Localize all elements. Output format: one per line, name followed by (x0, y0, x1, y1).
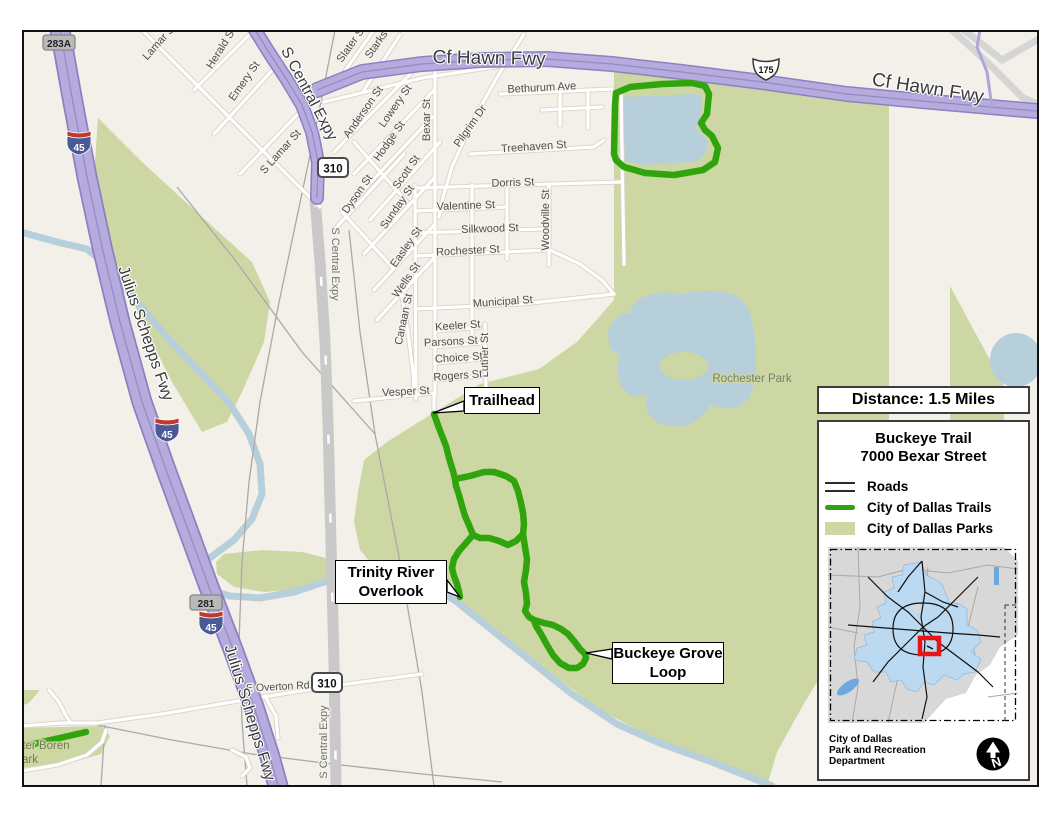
map-label: Emery St (227, 59, 263, 103)
svg-text:45: 45 (205, 623, 217, 634)
legend-item-trails-label: City of Dallas Trails (867, 500, 992, 515)
svg-text:45: 45 (73, 143, 85, 154)
map-label: Parsons St (424, 335, 478, 350)
map-label: S Central Expy (318, 705, 330, 779)
attribution-line3: Department (829, 756, 926, 767)
exit-shield-icon: 281 (190, 595, 222, 610)
map-label: Choice St (435, 350, 483, 365)
svg-text:310: 310 (323, 164, 342, 176)
loop-callout-line2: Loop (613, 663, 723, 682)
legend-items: Roads City of Dallas Trails City of Dall… (825, 476, 1028, 539)
map-label: Vesper St (382, 385, 430, 399)
map-label: ter Boren (24, 740, 70, 752)
map-label: Cf Hawn Fwy (432, 47, 546, 70)
attribution: City of Dallas Park and Recreation Depar… (829, 734, 926, 767)
map-label: ark (24, 754, 38, 766)
inset-locator-map (828, 547, 1018, 723)
map-label: Bexar St (421, 99, 433, 141)
legend-item-roads-label: Roads (867, 479, 908, 494)
distance-panel: Distance: 1.5 Miles (817, 386, 1030, 414)
map-label: Rochester Park (712, 373, 792, 385)
legend-item-parks-label: City of Dallas Parks (867, 521, 993, 536)
map-label: Woodville St (540, 190, 552, 251)
attribution-line2: Park and Recreation (829, 745, 926, 756)
legend-item-trails: City of Dallas Trails (825, 497, 1028, 518)
overlook-callout-line1: Trinity River (336, 563, 446, 582)
interstate-shield-icon: 45 (199, 611, 223, 635)
legend-title-line2: 7000 Bexar Street (819, 448, 1028, 466)
map-label: Rogers St (433, 368, 483, 383)
map-frame: Lamar StHerald StEmery StS Lamar StSlate… (22, 30, 1039, 787)
interstate-shield-icon: 45 (155, 418, 179, 442)
roads-double-line-icon (825, 482, 855, 492)
svg-text:281: 281 (198, 599, 215, 610)
svg-text:283A: 283A (47, 39, 71, 50)
north-arrow-icon: N (975, 736, 1011, 772)
state-shield-icon: 310 (318, 158, 348, 177)
interstate-shield-icon: 45 (67, 131, 91, 155)
map-label: Easley St (388, 225, 424, 270)
overlook-callout-line2: Overlook (336, 582, 446, 601)
loop-callout-line1: Buckeye Grove (613, 644, 723, 663)
distance-value: Distance: 1.5 Miles (852, 391, 995, 409)
map-label: Silkwood St (461, 222, 519, 236)
boren-park-wedge (24, 690, 40, 706)
trinity-river-overlook-callout: Trinity River Overlook (335, 560, 447, 604)
park-swatch-icon (825, 522, 855, 535)
map-label: Pilgrim Dr (452, 103, 490, 150)
attribution-line1: City of Dallas (829, 734, 926, 745)
trailhead-callout-label: Trailhead (465, 391, 539, 410)
map-document-page: Lamar StHerald StEmery StS Lamar StSlate… (0, 0, 1056, 816)
rochester-pond-island (660, 352, 708, 380)
legend-title-line1: Buckeye Trail (819, 430, 1028, 448)
legend-panel: Buckeye Trail 7000 Bexar Street Roads Ci… (817, 420, 1030, 781)
map-label: S Central Expy (329, 227, 341, 301)
trailhead-tail (433, 401, 464, 413)
trailhead-callout: Trailhead (464, 387, 540, 414)
map-label: Municipal St (472, 294, 533, 310)
svg-text:45: 45 (161, 430, 173, 441)
state-shield-icon: 310 (312, 673, 342, 692)
map-label: Dorris St (491, 176, 534, 189)
map-label: Treehaven St (501, 139, 567, 156)
svg-text:310: 310 (317, 679, 336, 691)
svg-text:175: 175 (758, 65, 773, 75)
buckeye-grove-loop-callout: Buckeye Grove Loop (612, 642, 724, 684)
trail-green-line-icon (825, 505, 855, 510)
legend-item-roads: Roads (825, 476, 1028, 497)
map-label: Rochester St (436, 243, 500, 258)
exit-shield-icon: 283A (43, 35, 75, 50)
legend-item-parks: City of Dallas Parks (825, 518, 1028, 539)
legend-title: Buckeye Trail 7000 Bexar Street (819, 430, 1028, 466)
buckeye-lake (619, 94, 708, 165)
map-label: Valentine St (436, 199, 495, 213)
